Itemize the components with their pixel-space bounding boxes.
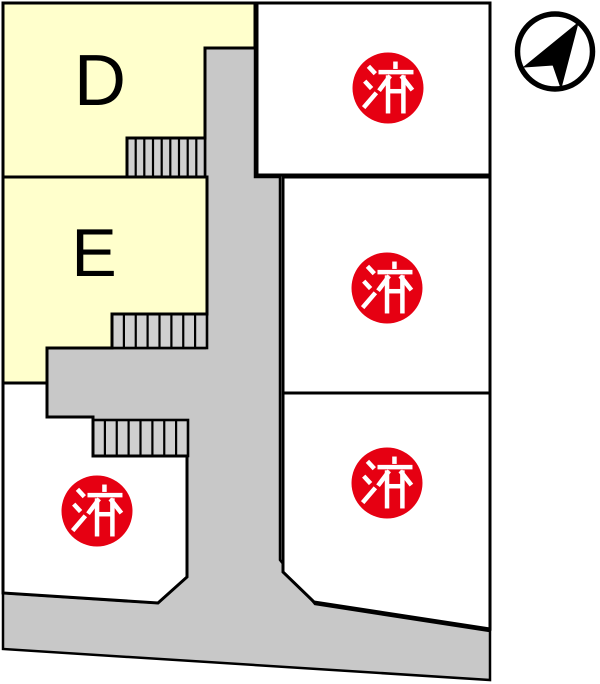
lot-e-label: E [71, 215, 116, 291]
north-arrow-icon [518, 14, 593, 89]
sold-badge-bottom-left: 済 [62, 476, 133, 547]
stairs-middle [112, 314, 207, 348]
stairs-lower [93, 420, 188, 456]
sold-badge-top-right: 済 [353, 53, 424, 124]
lot-map: D E 済 済 済 済 [0, 0, 600, 684]
stairs-upper [127, 138, 205, 177]
lot-d-label: D [74, 41, 126, 121]
sold-badge-middle-right: 済 [352, 253, 423, 324]
lot-map-canvas: D E 済 済 済 済 [0, 0, 600, 684]
sold-badge-bottom-right: 済 [352, 448, 423, 519]
